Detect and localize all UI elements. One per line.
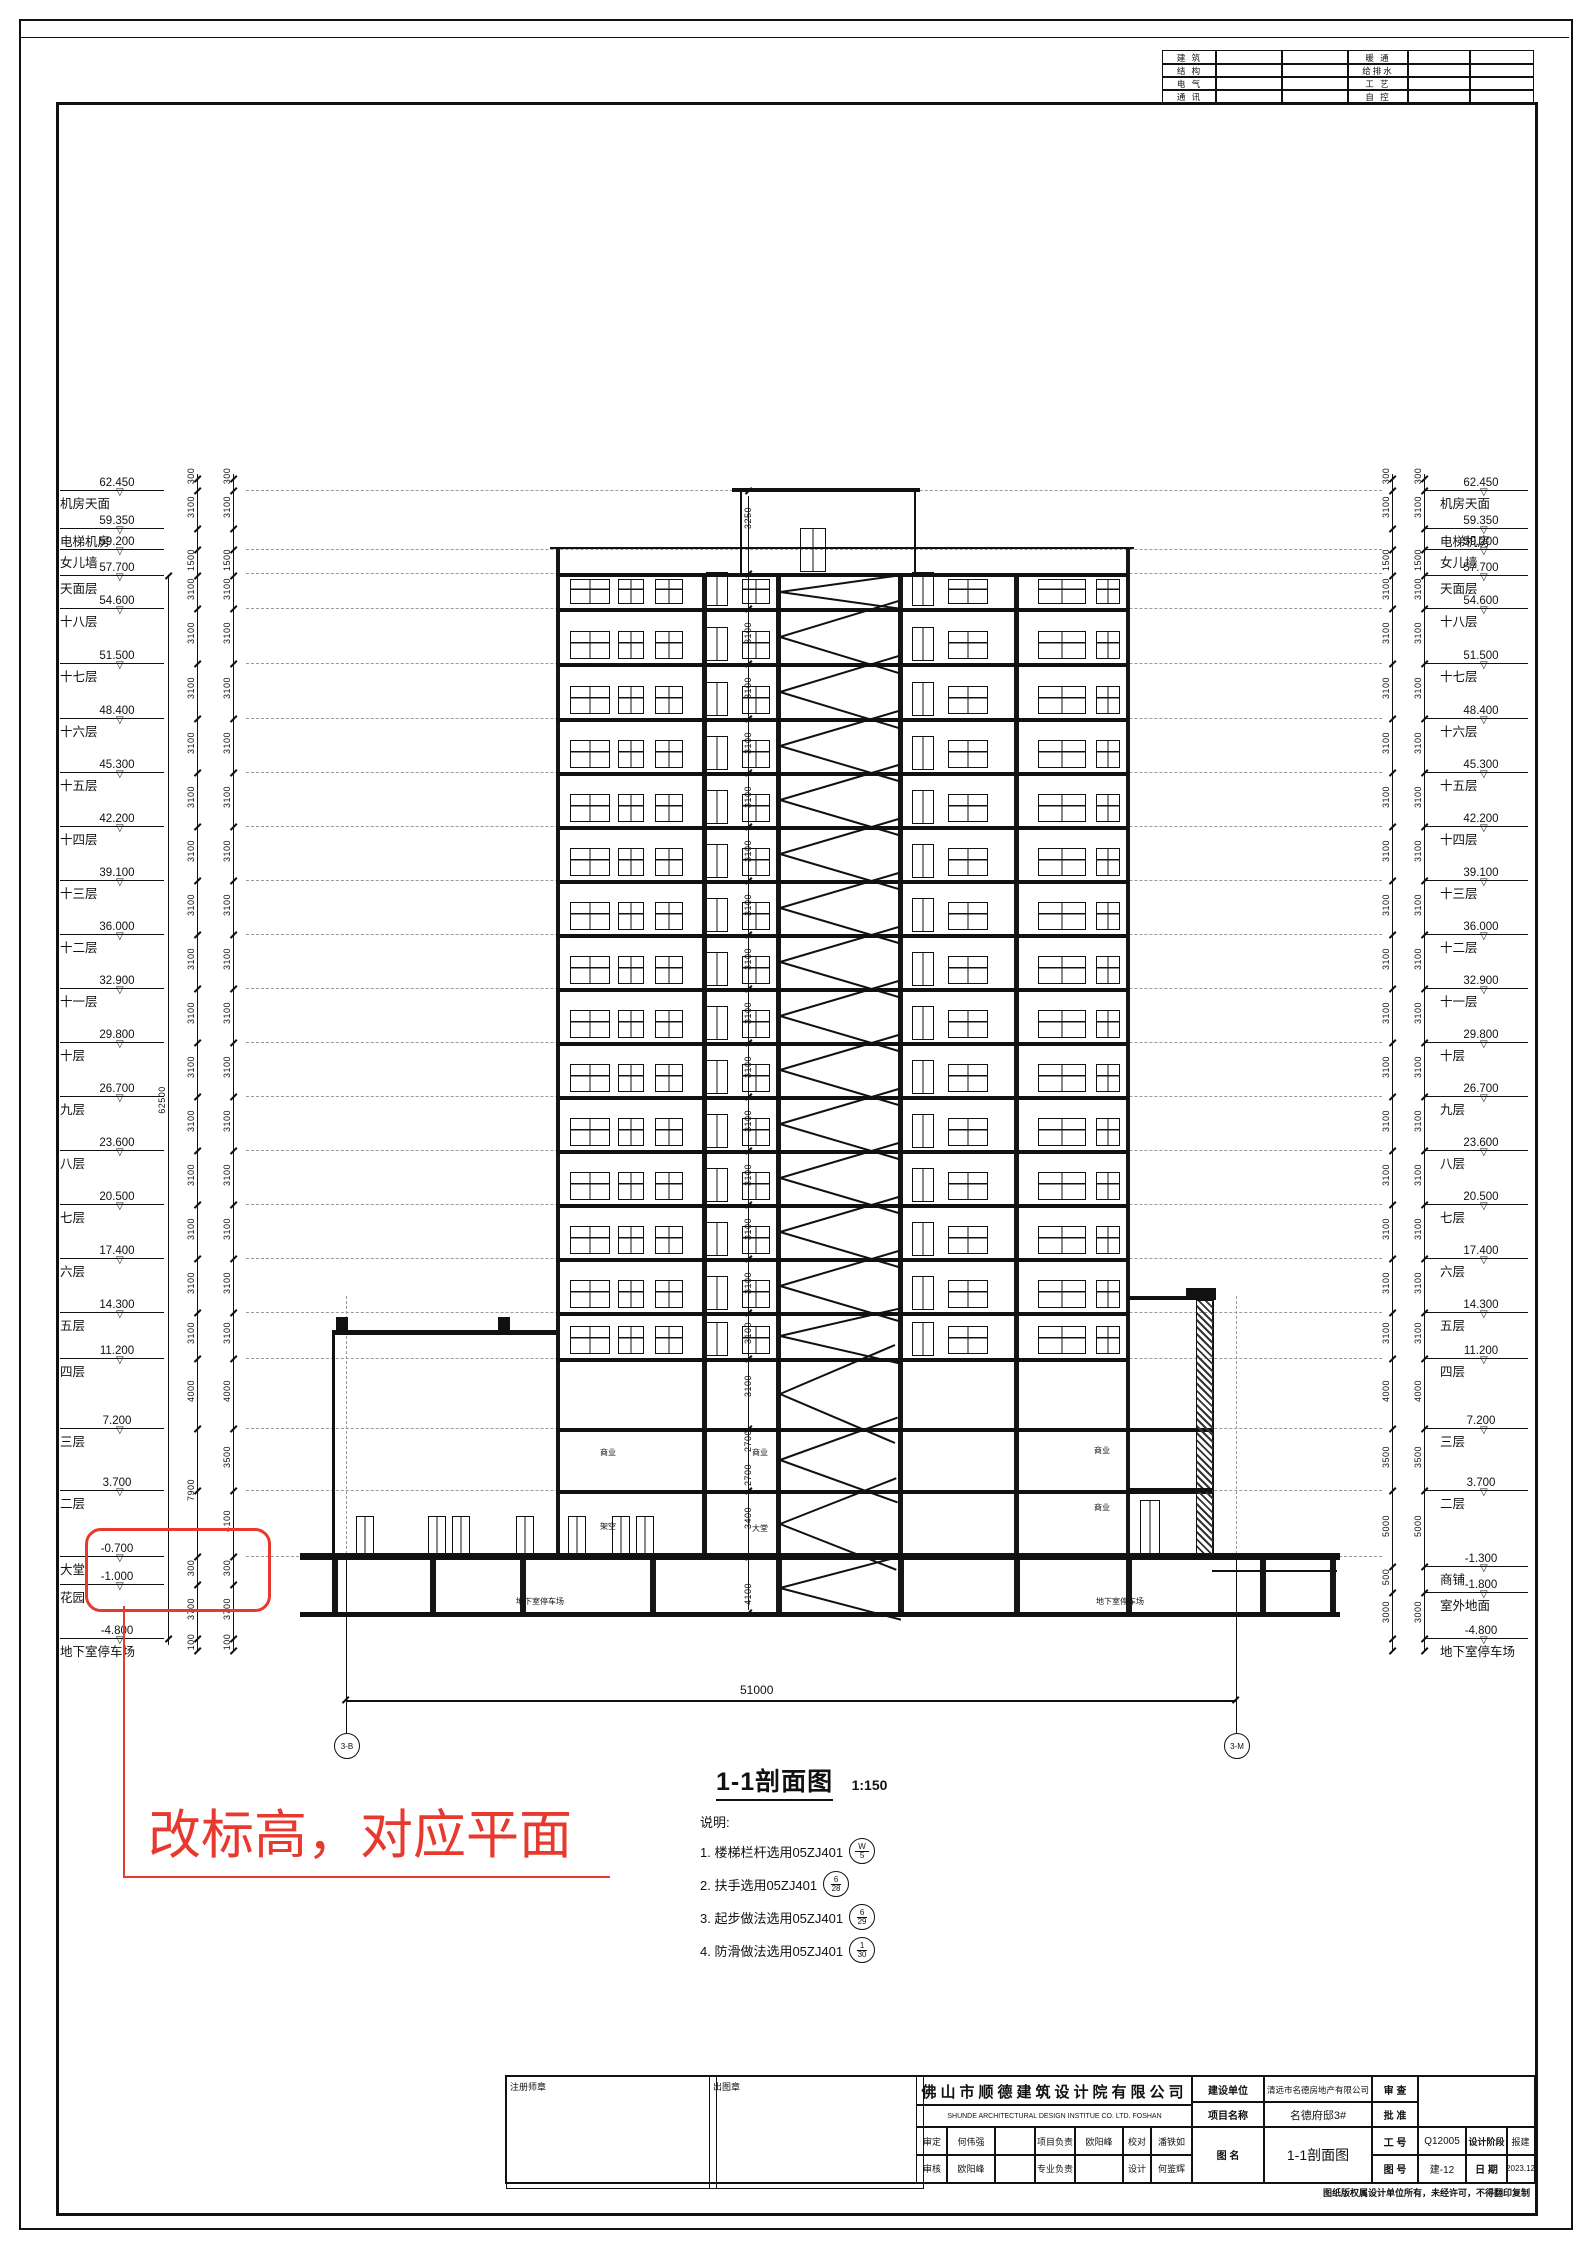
level-elevation: -4.800: [1424, 1624, 1528, 1639]
level-triangle-icon: ▽: [1480, 573, 1488, 583]
level-name: 十八层: [1424, 611, 1528, 630]
ground-door-icon: [452, 1516, 470, 1555]
door-icon: [912, 572, 934, 606]
level-marker: 57.700▽天面层: [1424, 561, 1528, 597]
window-icon: [1096, 956, 1120, 984]
dim-value: 3100: [186, 482, 196, 532]
floor-slab: [556, 1358, 1128, 1362]
overall-dim-value: 62500: [157, 1075, 167, 1125]
level-marker: 62.450▽机房天面: [60, 476, 164, 512]
level-triangle-icon: ▽: [116, 1148, 124, 1158]
dim-value: 3100: [222, 663, 232, 713]
level-elevation: 36.000: [1424, 920, 1528, 935]
level-triangle-icon: ▽: [1480, 824, 1488, 834]
window-icon: [1096, 686, 1120, 714]
person-name: 何伟强: [947, 2127, 995, 2155]
dim-value: 3100: [222, 1258, 232, 1308]
sheet-no-value: 建-12: [1418, 2155, 1466, 2182]
dimension-line: [197, 474, 198, 1650]
dim-value: 3100: [1413, 564, 1423, 614]
client-value: 清远市名德房地产有限公司: [1264, 2077, 1372, 2102]
level-marker: 57.700▽天面层: [60, 561, 164, 597]
dim-value: 3100: [743, 826, 753, 876]
window-icon: [1038, 1064, 1086, 1092]
window-icon: [570, 1326, 610, 1354]
window-icon: [1038, 1172, 1086, 1200]
level-elevation: -4.800: [60, 1624, 164, 1639]
level-name: 十六层: [60, 721, 164, 740]
note-text: 4. 防滑做法选用05ZJ401: [700, 1941, 843, 1960]
level-marker: 51.500▽十七层: [1424, 649, 1528, 685]
window-icon: [618, 1226, 644, 1254]
window-icon: [570, 1064, 610, 1092]
date-value: 2023.12: [1507, 2155, 1534, 2182]
note-item: 1. 楼梯栏杆选用05ZJ401W5: [700, 1838, 875, 1864]
level-triangle-icon: ▽: [1480, 932, 1488, 942]
dim-value: 3100: [222, 1096, 232, 1146]
level-name: 十四层: [60, 829, 164, 848]
dim-value: 3100: [186, 988, 196, 1038]
hatched-wall: [1196, 1300, 1214, 1556]
dim-value: 3100: [1381, 718, 1391, 768]
level-marker: 11.200▽四层: [60, 1344, 164, 1380]
level-triangle-icon: ▽: [116, 573, 124, 583]
level-elevation: 57.700: [60, 561, 164, 576]
dim-value: 3100: [743, 1150, 753, 1200]
level-elevation: 39.100: [60, 866, 164, 881]
level-marker: 39.100▽十三层: [1424, 866, 1528, 902]
window-icon: [655, 1010, 683, 1038]
window-icon: [618, 740, 644, 768]
stair-flight: [780, 1285, 900, 1322]
level-name: 十层: [60, 1045, 164, 1064]
caption-scale: 1:150: [852, 1777, 888, 1793]
level-elevation: 45.300: [60, 758, 164, 773]
level-marker: 7.200▽三层: [1424, 1414, 1528, 1450]
window-icon: [948, 1226, 988, 1254]
level-name: 九层: [1424, 1099, 1528, 1118]
level-name: 十二层: [1424, 937, 1528, 956]
floor-slab: [556, 1042, 1128, 1046]
window-icon: [1096, 1280, 1120, 1308]
dim-value: 3100: [743, 880, 753, 930]
level-name: 十二层: [60, 937, 164, 956]
level-elevation: 57.700: [1424, 561, 1528, 576]
level-elevation: 14.300: [60, 1298, 164, 1313]
window-icon: [948, 956, 988, 984]
window-icon: [948, 848, 988, 876]
window-icon: [948, 1064, 988, 1092]
copyright-note: 图纸版权属设计单位所有，未经许可，不得翻印复制: [1120, 2186, 1530, 2199]
level-name: 十八层: [60, 611, 164, 630]
window-icon: [1038, 1326, 1086, 1354]
floor-slab: [556, 1428, 1212, 1432]
floor-slab: [556, 1204, 1128, 1208]
dim-value: 3100: [743, 608, 753, 658]
level-marker: 51.500▽十七层: [60, 649, 164, 685]
window-icon: [570, 1226, 610, 1254]
window-icon: [948, 631, 988, 659]
dim-value: 3100: [743, 1308, 753, 1358]
window-icon: [655, 848, 683, 876]
dim-value: 3100: [1413, 1258, 1423, 1308]
dim-value: 5000: [1381, 1501, 1391, 1551]
dimension-line: [1424, 474, 1425, 1650]
note-text: 2. 扶手选用05ZJ401: [700, 1875, 817, 1894]
dim-value: 3100: [1413, 1042, 1423, 1092]
level-triangle-icon: ▽: [1480, 606, 1488, 616]
stage-value: 报建: [1507, 2127, 1534, 2155]
level-elevation: 42.200: [60, 812, 164, 827]
floor-slab: [556, 988, 1128, 992]
level-triangle-icon: ▽: [1480, 488, 1488, 498]
stair-flight: [780, 980, 900, 1017]
stair-flight: [780, 818, 900, 855]
basement-column: [1260, 1560, 1266, 1612]
window-icon: [1096, 631, 1120, 659]
dim-tick: [1389, 1647, 1396, 1654]
level-elevation: 51.500: [1424, 649, 1528, 664]
dim-value: 3100: [1381, 1150, 1391, 1200]
revision-cloud: [85, 1528, 271, 1612]
level-elevation: 26.700: [1424, 1082, 1528, 1097]
level-marker: 62.450▽机房天面: [1424, 476, 1528, 512]
window-icon: [570, 579, 610, 604]
window-icon: [1038, 1010, 1086, 1038]
dim-value: 3100: [743, 1096, 753, 1146]
level-marker: 45.300▽十五层: [60, 758, 164, 794]
basement-column: [776, 1560, 782, 1612]
window-icon: [948, 1118, 988, 1146]
dim-value: 3100: [222, 1308, 232, 1358]
window-icon: [948, 1326, 988, 1354]
level-marker: 20.500▽七层: [1424, 1190, 1528, 1226]
window-icon: [1038, 740, 1086, 768]
level-elevation: 23.600: [1424, 1136, 1528, 1151]
room-label: 地下室停车场: [1096, 1596, 1144, 1607]
level-triangle-icon: ▽: [1480, 986, 1488, 996]
machine-room-roof-slab: [732, 488, 920, 492]
left-wing-wall: [332, 1330, 335, 1553]
dim-value: 3100: [186, 1150, 196, 1200]
dim-value: 3100: [1381, 1096, 1391, 1146]
window-icon: [618, 902, 644, 930]
axis-grid-line: [1236, 1296, 1237, 1554]
level-marker: 39.100▽十三层: [60, 866, 164, 902]
window-icon: [655, 686, 683, 714]
level-elevation: 17.400: [60, 1244, 164, 1259]
stair-flight: [780, 1417, 898, 1461]
level-triangle-icon: ▽: [116, 1426, 124, 1436]
dim-value: 3100: [186, 1308, 196, 1358]
dim-value: 7900: [186, 1465, 196, 1515]
level-name: 九层: [60, 1099, 164, 1118]
parapet-post: [498, 1317, 510, 1330]
person-name: [1075, 2155, 1123, 2182]
stage-label: 设计阶段: [1466, 2127, 1507, 2155]
dim-value: 3100: [186, 718, 196, 768]
window-icon: [618, 631, 644, 659]
level-triangle-icon: ▽: [1480, 770, 1488, 780]
annex-parapet-cap: [1186, 1288, 1216, 1300]
window-icon: [655, 956, 683, 984]
axis-extension-left: [346, 1556, 347, 1733]
dim-value: 3100: [186, 880, 196, 930]
job-label: 工 号: [1372, 2127, 1418, 2155]
level-name: 七层: [1424, 1207, 1528, 1226]
revision-leader-line: [123, 1606, 125, 1878]
stair-flight: [780, 1250, 900, 1287]
window-icon: [655, 1280, 683, 1308]
level-elevation: 59.350: [1424, 514, 1528, 529]
window-icon: [655, 1326, 683, 1354]
dim-value: 3100: [1413, 1204, 1423, 1254]
stair-flight: [780, 636, 900, 674]
stair-flight: [780, 1196, 900, 1233]
dim-value: 3100: [186, 663, 196, 713]
level-triangle-icon: ▽: [116, 932, 124, 942]
dim-value: 3100: [743, 772, 753, 822]
dim-value: 3100: [1381, 608, 1391, 658]
level-name: 十六层: [1424, 721, 1528, 740]
stair-flight: [780, 591, 904, 610]
door-icon: [706, 844, 728, 878]
window-icon: [948, 794, 988, 822]
dim-value: 3100: [1381, 880, 1391, 930]
note-item: 4. 防滑做法选用05ZJ401130: [700, 1937, 875, 1963]
level-elevation: 11.200: [60, 1344, 164, 1359]
dim-value: 3100: [222, 826, 232, 876]
level-elevation: 39.100: [1424, 866, 1528, 881]
door-icon: [912, 1168, 934, 1202]
level-name: 六层: [1424, 1261, 1528, 1280]
level-marker: 23.600▽八层: [60, 1136, 164, 1172]
dim-value: 3100: [1413, 1096, 1423, 1146]
floor-slab: [556, 1312, 1128, 1316]
seal-issue: 出图章: [710, 2077, 923, 2188]
person-name: 专业负责: [1035, 2155, 1075, 2182]
window-icon: [1038, 956, 1086, 984]
level-elevation: 3.700: [60, 1476, 164, 1491]
dim-value: 3100: [222, 1204, 232, 1254]
level-elevation: 20.500: [60, 1190, 164, 1205]
window-icon: [1038, 1226, 1086, 1254]
window-icon: [570, 740, 610, 768]
shop-level-line: [1212, 1570, 1337, 1572]
level-marker: 11.200▽四层: [1424, 1344, 1528, 1380]
window-icon: [1096, 1172, 1120, 1200]
level-marker: 7.200▽三层: [60, 1414, 164, 1450]
window-icon: [1096, 848, 1120, 876]
window-icon: [618, 1326, 644, 1354]
level-name: 四层: [1424, 1361, 1528, 1380]
level-marker: 54.600▽十八层: [1424, 594, 1528, 630]
basement-column: [1330, 1560, 1336, 1612]
role-label: 潘铁如: [1151, 2127, 1192, 2155]
level-triangle-icon: ▽: [1480, 1426, 1488, 1436]
overall-dim-line: [346, 1700, 1236, 1702]
dim-value: 3500: [222, 1432, 232, 1482]
stair-flight: [780, 853, 900, 890]
level-elevation: 7.200: [1424, 1414, 1528, 1429]
level-elevation: 32.900: [1424, 974, 1528, 989]
door-icon: [706, 1322, 728, 1356]
machine-room-door: [800, 528, 826, 572]
level-elevation: 7.200: [60, 1414, 164, 1429]
dim-value: 3100: [1413, 880, 1423, 930]
level-elevation: 45.300: [1424, 758, 1528, 773]
axis-extension-right: [1236, 1556, 1237, 1733]
note-item: 2. 扶手选用05ZJ401628: [700, 1871, 875, 1897]
dim-value: 3100: [1381, 1204, 1391, 1254]
window-icon: [655, 740, 683, 768]
level-name: 十三层: [1424, 883, 1528, 902]
door-icon: [706, 1060, 728, 1094]
window-icon: [655, 794, 683, 822]
dim-value: 3100: [1413, 934, 1423, 984]
person-name: 设计: [1123, 2155, 1151, 2182]
window-icon: [618, 1118, 644, 1146]
door-icon: [912, 790, 934, 824]
level-marker: 29.800▽十层: [1424, 1028, 1528, 1064]
level-triangle-icon: ▽: [116, 1040, 124, 1050]
level-elevation: 29.800: [1424, 1028, 1528, 1043]
level-marker: 3.700▽二层: [1424, 1476, 1528, 1512]
stair-flight: [780, 1142, 900, 1179]
dim-value: 4000: [1413, 1366, 1423, 1416]
level-elevation: 59.200: [60, 535, 164, 550]
level-marker: 42.200▽十四层: [1424, 812, 1528, 848]
level-name: 地下室停车场: [60, 1641, 164, 1660]
dimension-line: [233, 474, 234, 1650]
level-elevation: 54.600: [60, 594, 164, 609]
room-label: 商业: [1094, 1445, 1110, 1456]
window-icon: [618, 686, 644, 714]
floor-slab: [556, 880, 1128, 884]
level-triangle-icon: ▽: [116, 1310, 124, 1320]
level-triangle-icon: ▽: [116, 878, 124, 888]
window-icon: [618, 1280, 644, 1308]
level-triangle-icon: ▽: [1480, 661, 1488, 671]
window-icon: [655, 1172, 683, 1200]
level-name: 八层: [60, 1153, 164, 1172]
door-icon: [912, 627, 934, 661]
stair-flight: [780, 1393, 896, 1444]
dim-value: 3100: [1413, 1150, 1423, 1200]
dim-value: 3100: [222, 608, 232, 658]
level-marker: 45.300▽十五层: [1424, 758, 1528, 794]
window-icon: [618, 956, 644, 984]
window-icon: [1096, 579, 1120, 604]
company-name: 佛山市顺德建筑设计院有限公司: [917, 2077, 1192, 2105]
drawing-name-label: 图 名: [1192, 2127, 1264, 2182]
window-icon: [570, 956, 610, 984]
door-icon: [912, 1114, 934, 1148]
level-elevation: 59.350: [60, 514, 164, 529]
dim-value: 3000: [1381, 1587, 1391, 1637]
left-wing-roof-slab: [332, 1330, 556, 1335]
door-icon: [912, 1276, 934, 1310]
dim-value: 3100: [222, 564, 232, 614]
level-name: 机房天面: [1424, 493, 1528, 512]
door-icon: [912, 736, 934, 770]
dimension-line: [1392, 474, 1393, 1650]
window-icon: [1038, 794, 1086, 822]
dim-value: 3100: [222, 934, 232, 984]
level-triangle-icon: ▽: [116, 661, 124, 671]
stair-flight: [780, 1459, 898, 1503]
level-elevation: -1.300: [1424, 1552, 1528, 1567]
dim-value: 3100: [1413, 988, 1423, 1038]
window-icon: [1096, 1326, 1120, 1354]
window-icon: [570, 1118, 610, 1146]
drawing-sheet: 建 筑暖 通结 构给排水电 气工 艺通 讯自 控 62.450▽机房天面59.3…: [0, 0, 1588, 2245]
elevator-machine-room: [740, 490, 916, 577]
window-icon: [655, 1118, 683, 1146]
note-item: 3. 起步做法选用05ZJ401629: [700, 1904, 875, 1930]
dim-value: 3100: [186, 772, 196, 822]
dim-value: 3100: [186, 934, 196, 984]
level-name: 七层: [60, 1207, 164, 1226]
window-icon: [618, 848, 644, 876]
stair-flight: [780, 599, 900, 637]
room-label: 商业: [752, 1447, 768, 1458]
basement-slab: [300, 1612, 1340, 1617]
level-name: 三层: [1424, 1431, 1528, 1450]
level-elevation: 42.200: [1424, 812, 1528, 827]
door-icon: [706, 1168, 728, 1202]
ground-door-icon: [516, 1516, 534, 1555]
level-marker: 17.400▽六层: [1424, 1244, 1528, 1280]
door-icon: [912, 844, 934, 878]
level-marker: 26.700▽九层: [60, 1082, 164, 1118]
date-label: 日 期: [1466, 2155, 1507, 2182]
room-label: 地下室停车场: [516, 1596, 564, 1607]
window-icon: [570, 686, 610, 714]
level-elevation: 26.700: [60, 1082, 164, 1097]
floor-slab: [556, 826, 1128, 830]
dim-value: 3100: [1381, 988, 1391, 1038]
level-triangle-icon: ▽: [116, 488, 124, 498]
level-name: 八层: [1424, 1153, 1528, 1172]
window-icon: [1096, 1064, 1120, 1092]
level-marker: 54.600▽十八层: [60, 594, 164, 630]
level-triangle-icon: ▽: [116, 1202, 124, 1212]
level-marker: 48.400▽十六层: [1424, 704, 1528, 740]
notes-heading: 说明:: [700, 1812, 875, 1831]
window-icon: [570, 794, 610, 822]
stair-flight: [780, 691, 900, 729]
door-icon: [912, 682, 934, 716]
level-triangle-icon: ▽: [116, 824, 124, 834]
axis-bubble-left: 3-B: [334, 1733, 360, 1759]
dim-value: 3100: [1381, 772, 1391, 822]
window-icon: [1038, 631, 1086, 659]
floor-slab: [556, 718, 1128, 722]
dim-value: 3100: [186, 1258, 196, 1308]
door-icon: [706, 572, 728, 606]
dim-value: 3100: [743, 718, 753, 768]
window-icon: [570, 1010, 610, 1038]
level-triangle-icon: ▽: [1480, 1202, 1488, 1212]
stair-flight: [780, 710, 900, 747]
window-icon: [570, 1172, 610, 1200]
window-icon: [1038, 579, 1086, 604]
floor-slab: [556, 772, 1128, 776]
stair-flight: [780, 1069, 900, 1106]
person-name: [995, 2127, 1035, 2155]
level-name: 十五层: [60, 775, 164, 794]
